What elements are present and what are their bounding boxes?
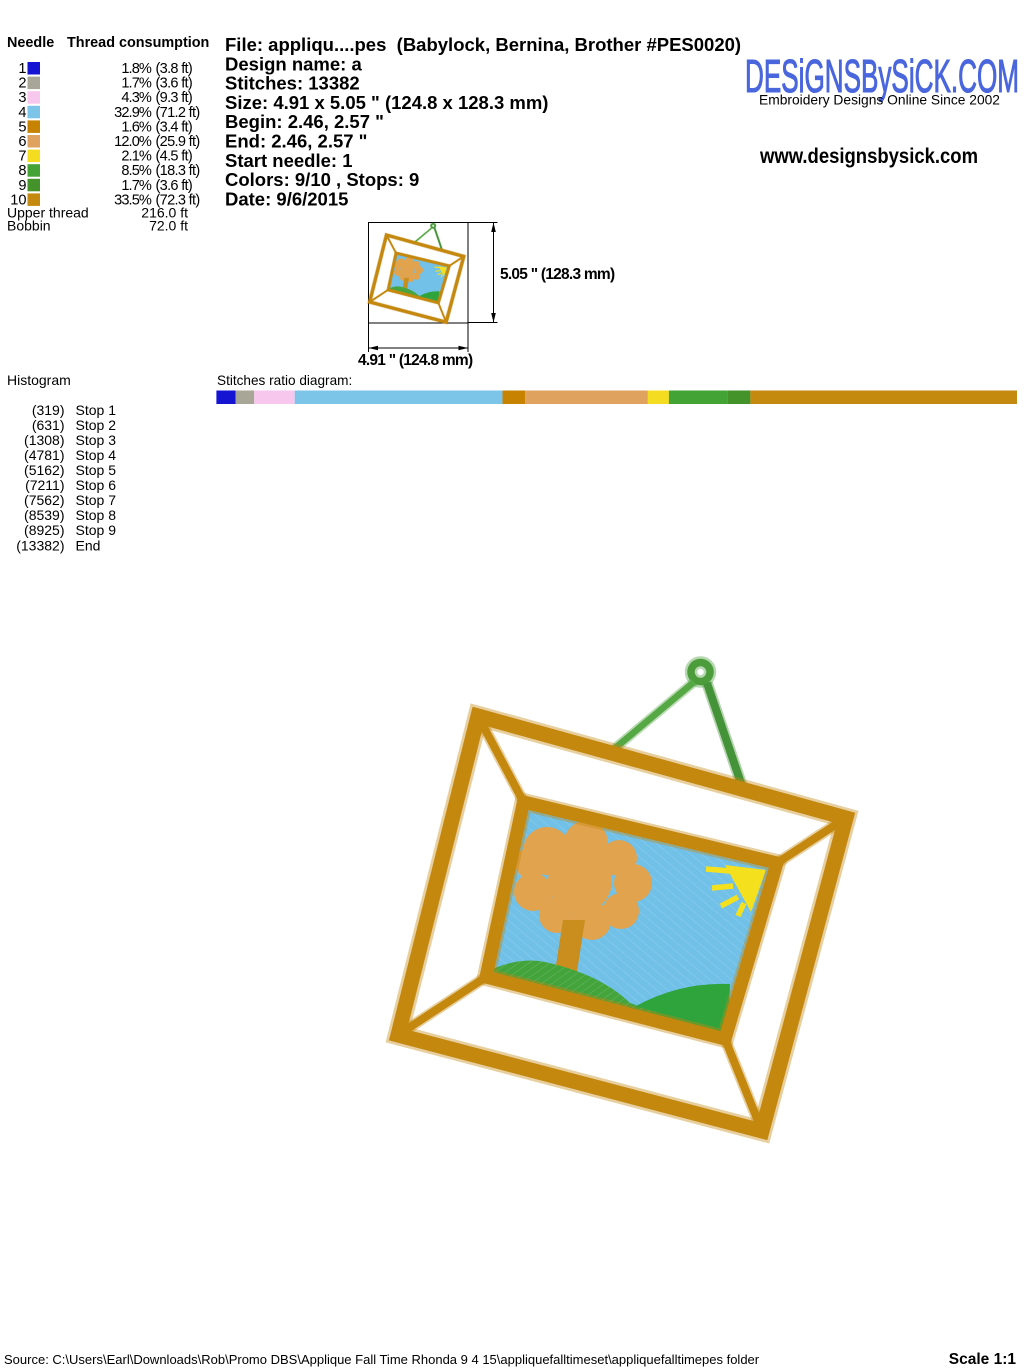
svg-text:(4.5 ft): (4.5 ft): [156, 149, 193, 165]
svg-text:Stop 5: Stop 5: [76, 462, 117, 478]
svg-text:(3.6 ft): (3.6 ft): [156, 76, 193, 92]
svg-text:Bobbin: Bobbin: [7, 218, 51, 234]
svg-text:5.05 " (128.3 mm): 5.05 " (128.3 mm): [500, 266, 615, 283]
svg-text:(4781): (4781): [24, 447, 64, 463]
svg-text:Stop 3: Stop 3: [76, 432, 117, 448]
svg-text:Begin: 2.46, 2.57 ": Begin: 2.46, 2.57 ": [225, 111, 384, 132]
svg-text:(7562): (7562): [24, 492, 64, 508]
svg-text:Thread consumption: Thread consumption: [67, 35, 209, 51]
svg-text:Stop 6: Stop 6: [76, 477, 117, 493]
svg-text:1.7%: 1.7%: [121, 76, 152, 92]
svg-text:(8925): (8925): [24, 522, 64, 538]
svg-text:(18.3 ft): (18.3 ft): [156, 163, 200, 179]
svg-text:Stop 2: Stop 2: [76, 417, 117, 433]
svg-text:(3.8 ft): (3.8 ft): [156, 61, 193, 77]
svg-text:(25.9 ft): (25.9 ft): [156, 134, 200, 150]
svg-text:1.6%: 1.6%: [121, 119, 152, 135]
svg-text:File: appliqu....pes (Babyloc: File: appliqu....pes (Babylock, Bernina,…: [225, 34, 741, 55]
svg-text:(71.2 ft): (71.2 ft): [156, 105, 200, 121]
svg-text:32.9%: 32.9%: [114, 105, 152, 121]
svg-text:(3.6 ft): (3.6 ft): [156, 178, 193, 194]
svg-text:End: End: [76, 537, 101, 553]
svg-text:Source: C:\Users\Earl\Download: Source: C:\Users\Earl\Downloads\Rob\Prom…: [4, 1352, 760, 1367]
svg-text:Stop 7: Stop 7: [76, 492, 117, 508]
svg-text:8.5%: 8.5%: [121, 163, 152, 179]
svg-text:Start needle: 1: Start needle: 1: [225, 150, 353, 171]
svg-text:8: 8: [18, 163, 26, 179]
svg-text:Stop 4: Stop 4: [76, 447, 117, 463]
svg-text:1.8%: 1.8%: [121, 61, 152, 77]
svg-text:5: 5: [18, 119, 26, 135]
svg-text:Stitches: 13382: Stitches: 13382: [225, 73, 360, 94]
svg-text:9: 9: [18, 178, 26, 194]
svg-text:Needle: Needle: [7, 35, 54, 51]
svg-text:2: 2: [18, 76, 26, 92]
svg-text:4.3%: 4.3%: [121, 90, 152, 106]
svg-text:(319): (319): [32, 402, 65, 418]
svg-text:72.0 ft: 72.0 ft: [149, 218, 188, 234]
svg-text:Embroidery Designs Online Sinc: Embroidery Designs Online Since 2002: [759, 92, 1000, 108]
svg-text:Design name: a: Design name: a: [225, 53, 362, 74]
svg-text:Scale 1:1: Scale 1:1: [949, 1351, 1017, 1368]
svg-text:Stop 1: Stop 1: [76, 402, 117, 418]
svg-text:(9.3 ft): (9.3 ft): [156, 90, 193, 106]
svg-text:(5162): (5162): [24, 462, 64, 478]
svg-text:1.7%: 1.7%: [121, 178, 152, 194]
svg-text:3: 3: [18, 90, 26, 106]
svg-text:4.91 " (124.8 mm): 4.91 " (124.8 mm): [358, 352, 473, 369]
svg-text:Stitches ratio diagram:: Stitches ratio diagram:: [217, 373, 352, 388]
svg-text:Stop 8: Stop 8: [76, 507, 117, 523]
svg-text:6: 6: [18, 134, 26, 150]
svg-text:End: 2.46, 2.57 ": End: 2.46, 2.57 ": [225, 131, 367, 152]
svg-text:(7211): (7211): [25, 477, 64, 493]
svg-text:Stop 9: Stop 9: [76, 522, 117, 538]
svg-text:4: 4: [18, 105, 26, 121]
svg-text:(631): (631): [32, 417, 65, 433]
svg-text:Histogram: Histogram: [7, 372, 71, 388]
svg-text:(8539): (8539): [24, 507, 64, 523]
svg-text:7: 7: [18, 149, 26, 165]
svg-text:2.1%: 2.1%: [121, 149, 152, 165]
svg-text:Size: 4.91 x 5.05 " (124.8 x 1: Size: 4.91 x 5.05 " (124.8 x 128.3 mm): [225, 92, 548, 113]
svg-text:Date: 9/6/2015: Date: 9/6/2015: [225, 188, 348, 209]
svg-text:12.0%: 12.0%: [114, 134, 152, 150]
svg-text:1: 1: [18, 61, 26, 77]
svg-text:www.designsbysick.com: www.designsbysick.com: [759, 145, 978, 168]
svg-text:(1308): (1308): [24, 432, 64, 448]
svg-text:Colors: 9/10 , Stops: 9: Colors: 9/10 , Stops: 9: [225, 169, 419, 190]
svg-text:(13382): (13382): [16, 537, 64, 553]
svg-text:(3.4 ft): (3.4 ft): [156, 119, 193, 135]
